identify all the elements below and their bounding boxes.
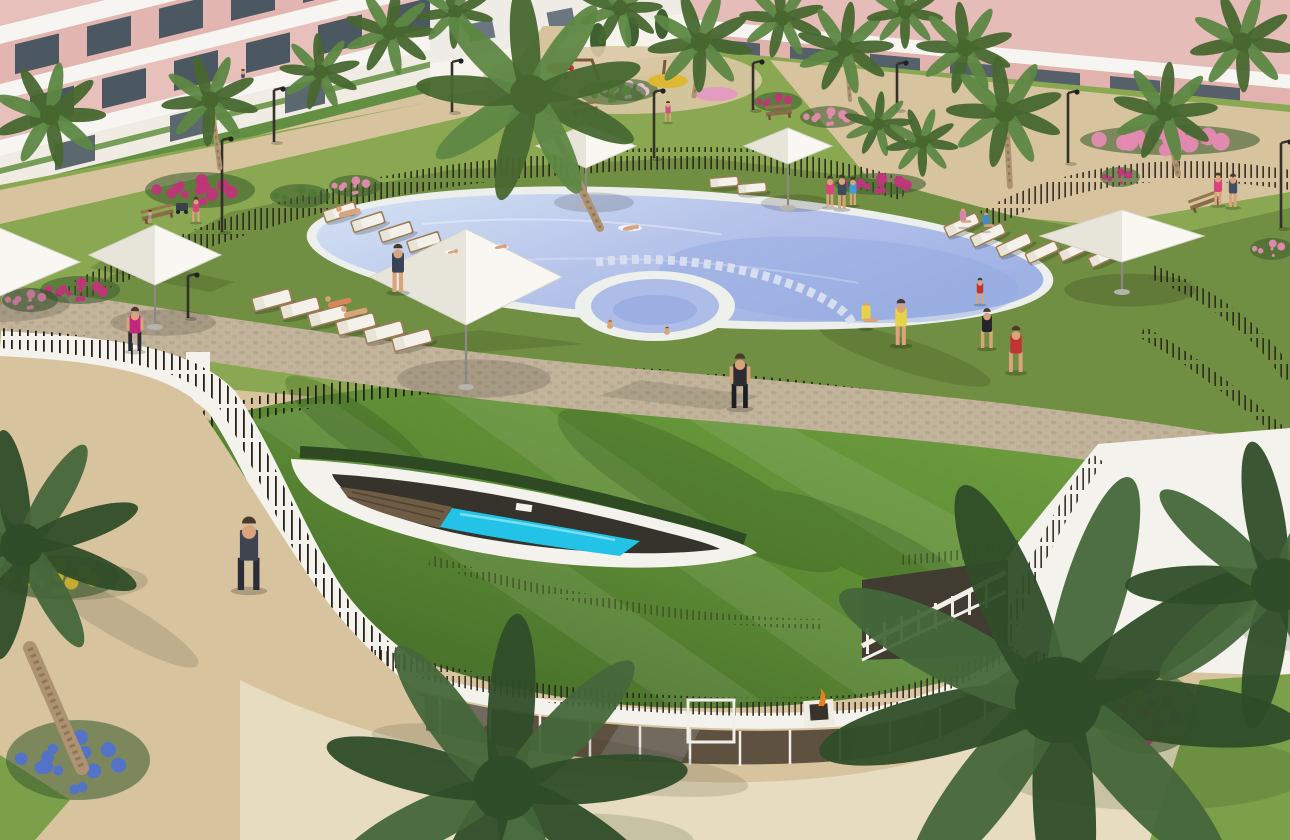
spa-pool [575, 271, 735, 341]
rendered-scene [0, 0, 1290, 840]
